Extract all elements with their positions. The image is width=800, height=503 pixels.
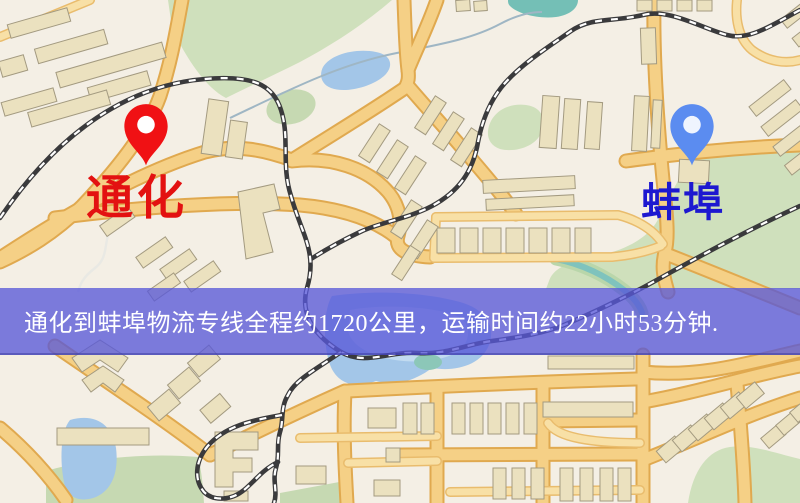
- route-info-text: 通化到蚌埠物流专线全程约1720公里，运输时间约22小时53分钟.: [0, 303, 719, 338]
- origin-city-label: 通化: [86, 173, 188, 225]
- origin-pin-shape: [124, 104, 167, 165]
- destination-pin-hole: [683, 116, 701, 134]
- map-canvas[interactable]: 通化 蚌埠: [0, 0, 800, 503]
- destination-pin-icon[interactable]: [666, 102, 718, 168]
- destination-pin-shape: [670, 104, 713, 165]
- origin-pin-hole: [137, 116, 155, 134]
- route-info-banner: 通化到蚌埠物流专线全程约1720公里，运输时间约22小时53分钟.: [0, 288, 800, 355]
- destination-city-label: 蚌埠: [641, 181, 725, 225]
- map-screenshot: 通化 蚌埠 通化到蚌埠物流专线全程约1720公里，运输时间约22小时53分钟.: [0, 0, 800, 503]
- origin-pin-icon[interactable]: [120, 102, 172, 168]
